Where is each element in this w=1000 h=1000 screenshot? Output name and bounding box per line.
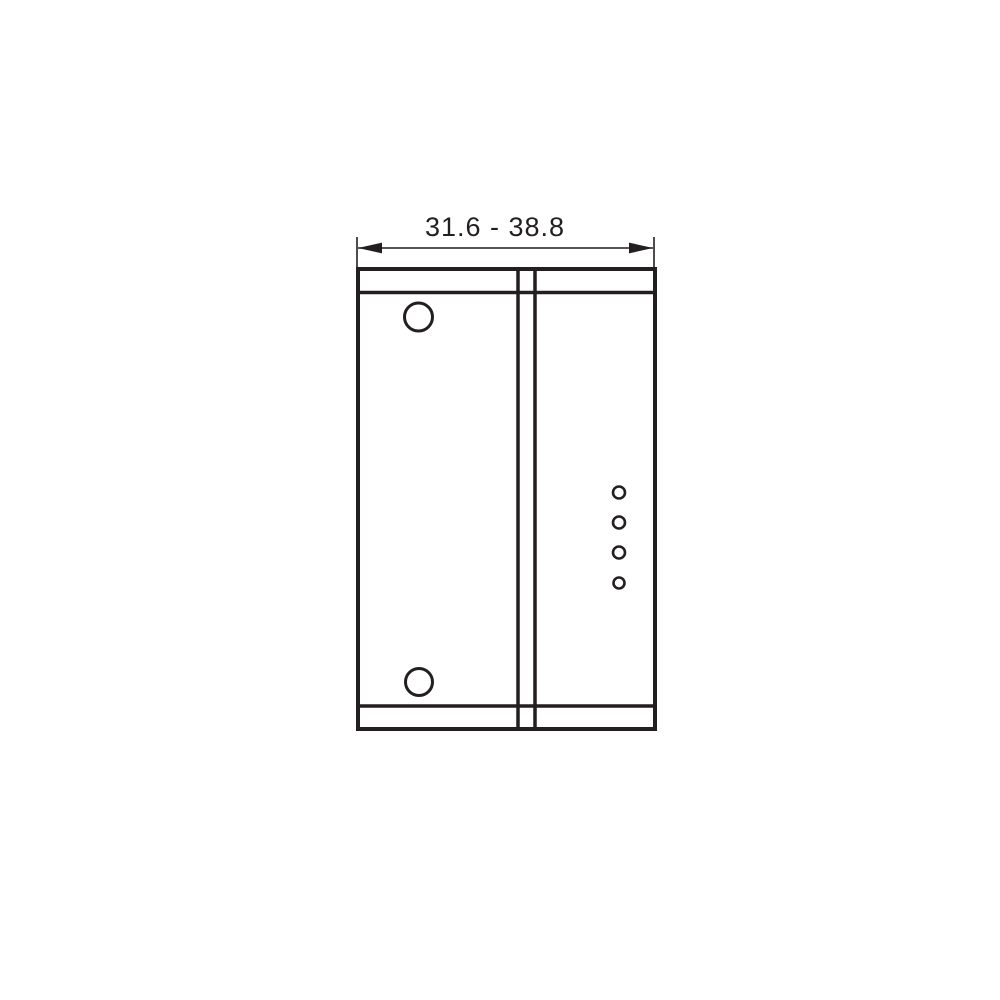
dimension-arrow-right-icon	[629, 243, 653, 254]
indicator-hole	[613, 487, 625, 499]
device-front-view	[358, 269, 655, 729]
drawing-root: 31.6 - 38.8	[357, 212, 655, 729]
mounting-hole-top	[405, 303, 433, 331]
dimension-arrow-left-icon	[358, 243, 382, 254]
technical-drawing: 31.6 - 38.8	[0, 0, 1000, 1000]
dimension-label: 31.6 - 38.8	[425, 212, 565, 242]
dimension-annotation: 31.6 - 38.8	[357, 212, 654, 268]
indicator-hole	[613, 547, 625, 559]
indicator-holes	[613, 487, 625, 589]
indicator-hole	[614, 578, 625, 589]
device-outline	[358, 269, 655, 729]
drawing-canvas: 31.6 - 38.8	[0, 0, 1000, 1000]
mounting-hole-bottom	[406, 669, 433, 696]
indicator-hole	[613, 517, 625, 529]
